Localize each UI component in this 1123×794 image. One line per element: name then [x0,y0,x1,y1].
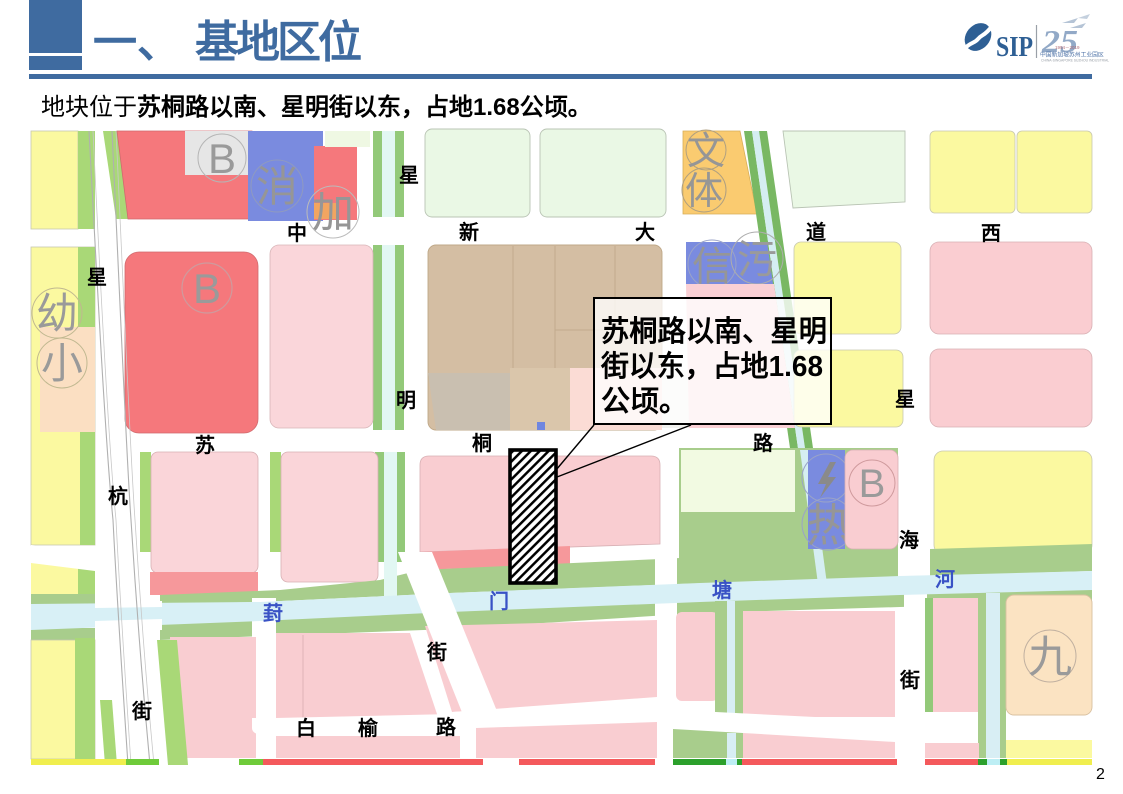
svg-text:B: B [193,265,221,312]
svg-text:消: 消 [256,163,298,210]
svg-text:门: 门 [489,589,509,613]
svg-text:杭: 杭 [108,484,128,508]
svg-text:大: 大 [635,221,655,244]
svg-text:污: 污 [737,238,777,282]
svg-text:街: 街 [426,640,447,664]
svg-text:体: 体 [685,171,723,213]
svg-text:加: 加 [312,189,354,236]
svg-text:苏桐路以南、星明: 苏桐路以南、星明 [601,315,827,348]
svg-text:葑: 葑 [263,601,283,625]
svg-text:中: 中 [287,221,307,245]
svg-text:海: 海 [899,528,919,552]
svg-text:信: 信 [692,245,732,289]
svg-text:白: 白 [296,716,316,740]
svg-text:B: B [208,135,236,182]
svg-text:榆: 榆 [358,716,379,740]
svg-text:道: 道 [806,220,826,244]
svg-text:塘: 塘 [712,578,732,602]
svg-text:B: B [859,462,886,506]
svg-text:路: 路 [753,431,774,455]
svg-text:街: 街 [131,699,152,723]
svg-text:明: 明 [396,389,416,412]
svg-text:桐: 桐 [472,432,492,455]
svg-text:街以东，占地1.68: 街以东，占地1.68 [600,349,823,383]
svg-text:星: 星 [87,266,107,289]
svg-text:苏: 苏 [195,434,215,457]
svg-text:新: 新 [459,220,479,244]
svg-text:文: 文 [687,131,725,173]
svg-text:幼: 幼 [36,290,78,337]
svg-text:路: 路 [436,715,457,739]
svg-text:星: 星 [399,164,419,187]
svg-text:西: 西 [981,223,1001,245]
svg-text:河: 河 [935,568,955,591]
svg-text:街: 街 [899,668,920,692]
svg-text:公顷。: 公顷。 [601,386,688,418]
svg-text:九: 九 [1028,633,1072,682]
svg-text:小: 小 [41,340,83,387]
svg-text:星: 星 [895,388,915,411]
